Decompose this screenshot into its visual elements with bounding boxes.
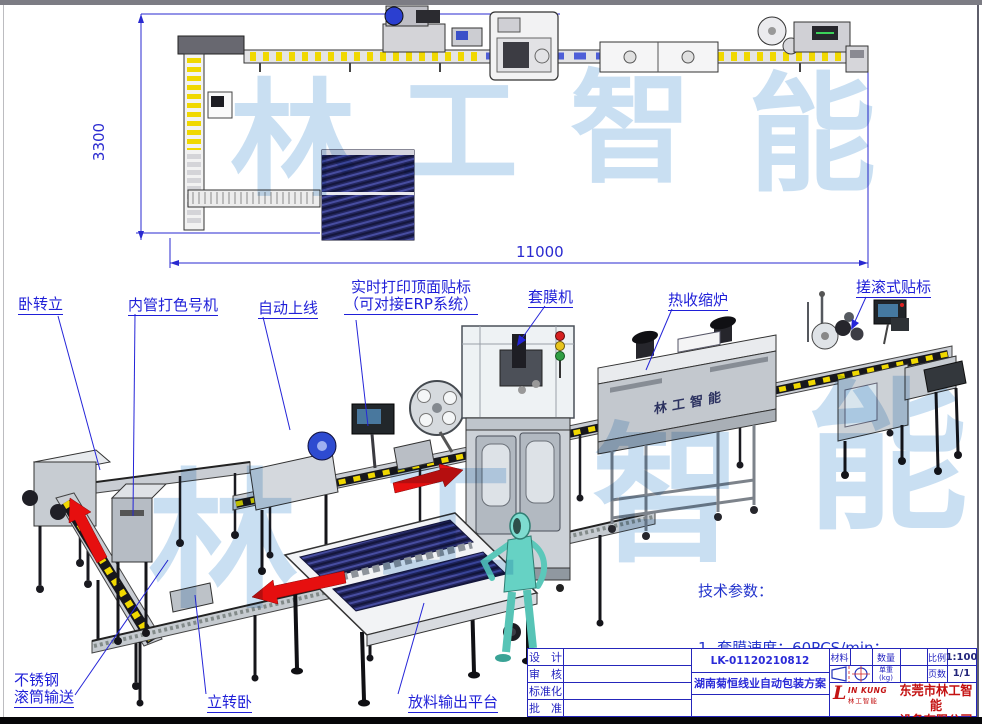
- tb-unit-weight-label: 单重 (kg): [872, 665, 900, 682]
- label-heat-shrink-oven: 热收缩炉: [668, 292, 728, 311]
- dimension-11000: 11000: [516, 243, 564, 261]
- company-logo-subtext: 林工智能: [846, 695, 895, 705]
- window-bottom-bar: [0, 717, 982, 724]
- label-top-labeler-line1: 实时打印顶面贴标: [344, 279, 478, 296]
- label-top-labeler: 实时打印顶面贴标 （可对接ERP系统）: [344, 279, 478, 315]
- tb-pages-label: 页数: [927, 665, 947, 682]
- plan-view: [136, 6, 868, 268]
- tb-unit-weight-text: 单重: [879, 666, 893, 674]
- tb-scale-value: 1:100: [947, 649, 976, 665]
- iso-turner-station: [22, 450, 110, 593]
- dimension-11000-lines: [170, 62, 868, 268]
- window-top-edge: [0, 0, 982, 5]
- iso-heat-shrink-oven: 林工智能: [598, 307, 776, 540]
- plan-roll-labeler: [758, 17, 868, 72]
- window-left-edge: [3, 5, 4, 717]
- tb-design-label: 设 计: [528, 649, 563, 665]
- label-inner-tube-printer: 内管打色号机: [128, 297, 218, 316]
- label-roll-labeler: 搓滚式贴标: [856, 279, 931, 298]
- label-vertical-to-horizontal: 立转卧: [207, 694, 252, 713]
- iso-vertical-to-horizontal-station: [170, 583, 213, 612]
- plan-top-labeler-printer: [383, 6, 482, 52]
- tb-material-label: 材料: [829, 649, 850, 665]
- label-horizontal-to-vertical: 卧转立: [18, 296, 63, 315]
- label-top-labeler-line2: （可对接ERP系统）: [344, 296, 478, 313]
- plan-film-sleeve-machine: [490, 12, 558, 80]
- company-logo: LIN KUNG 林工智能: [833, 686, 895, 705]
- signal-light-red: [556, 332, 565, 341]
- label-ss-roller-conveyor: 不锈钢 滚筒输送: [14, 672, 74, 708]
- tb-approve-label: 批 准: [528, 700, 563, 716]
- title-block: 设 计 审 核 标准化 批 准 LK-01120210812 湖南菊恒线业自动包…: [527, 648, 977, 717]
- label-ss-roller-line2: 滚筒输送: [14, 689, 74, 706]
- plan-left-conveyor: [178, 36, 320, 230]
- label-output-platform: 放料输出平台: [408, 694, 498, 713]
- signal-light-yellow: [556, 342, 565, 351]
- tb-drawing-number: LK-01120210812: [691, 649, 829, 672]
- label-ss-roller-line1: 不锈钢: [14, 672, 74, 689]
- tech-title: 技术参数：: [698, 582, 954, 601]
- tb-standardize-label: 标准化: [528, 683, 563, 699]
- tb-scale-label: 比例: [927, 649, 947, 665]
- company-logo-text: LIN KUNG: [833, 686, 895, 695]
- tb-review-label: 审 核: [528, 666, 563, 682]
- plan-spool-pallet: [322, 150, 414, 240]
- label-film-sleeve-machine: 套膜机: [528, 289, 573, 308]
- company-name-line1: 东莞市林工智能: [898, 684, 973, 714]
- dimension-3300: 3300: [90, 123, 108, 161]
- projection-symbol: [830, 666, 872, 682]
- tb-pages-value: 1/1: [947, 665, 976, 682]
- tb-unit-weight-unit: (kg): [879, 674, 893, 682]
- tb-project-name: 湖南菊恒线业自动包装方案: [691, 672, 829, 694]
- tb-qty-label: 数量: [872, 649, 900, 665]
- plan-heat-shrink-oven: [600, 42, 718, 72]
- label-auto-loading: 自动上线: [258, 300, 318, 319]
- sheet-right-border: [977, 5, 979, 717]
- signal-light-green: [556, 352, 565, 361]
- cad-drawing-sheet: 林工智能: [0, 0, 982, 724]
